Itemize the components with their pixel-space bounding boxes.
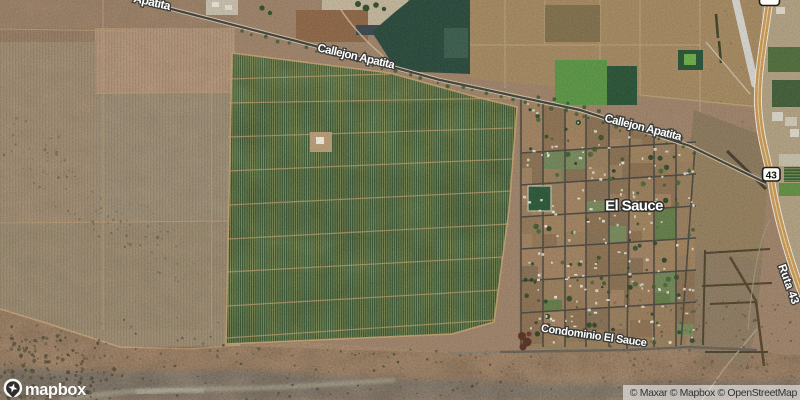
svg-text:mapbox: mapbox — [25, 381, 87, 399]
svg-text:43: 43 — [766, 170, 778, 181]
svg-text:El Sauce: El Sauce — [605, 198, 663, 215]
